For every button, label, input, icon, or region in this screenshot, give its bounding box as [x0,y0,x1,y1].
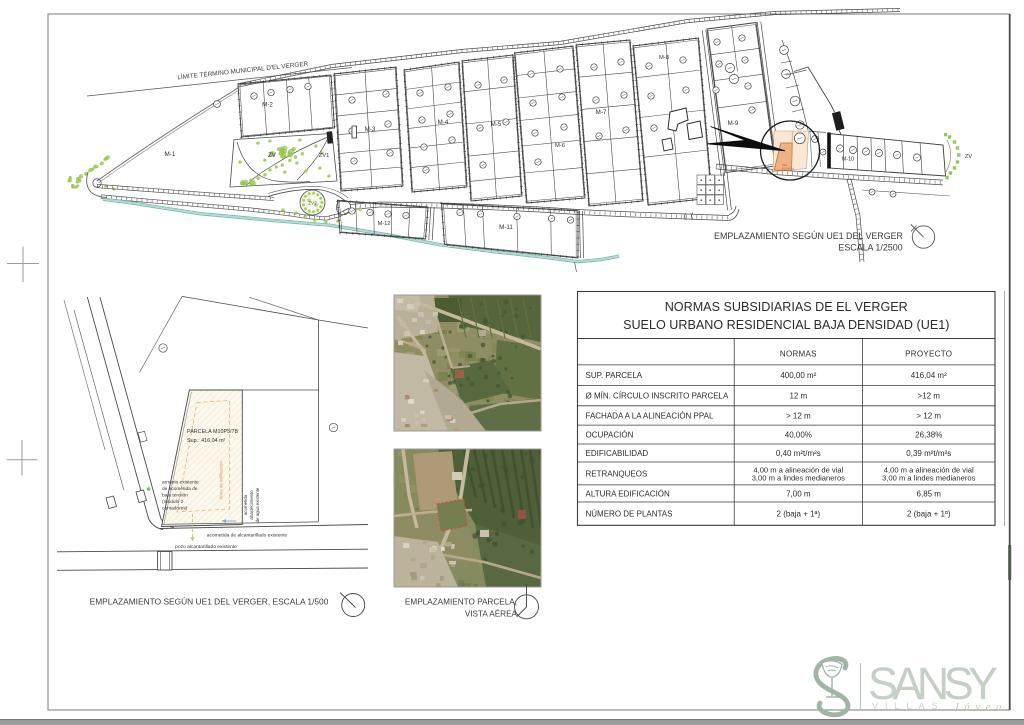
svg-text:M-9: M-9 [728,120,739,127]
svg-text:PARCELA M10P5/7B: PARCELA M10P5/7B [187,429,239,435]
svg-text:NORMAS SUBSIDIARIAS DE EL VERG: NORMAS SUBSIDIARIAS DE EL VERGER [665,300,908,314]
svg-text:SUP. PARCELA: SUP. PARCELA [586,371,643,380]
svg-text:40,00%: 40,00% [785,430,812,439]
svg-text:acometida: acometida [243,494,248,515]
svg-text:> 12 m: > 12 m [786,411,811,420]
svg-text:400,00 m²: 400,00 m² [780,371,816,380]
svg-text:VISTA AÉREA: VISTA AÉREA [465,609,518,619]
svg-text:abastecimiento: abastecimiento [249,490,254,520]
svg-text:416,04 m²: 416,04 m² [782,166,794,170]
svg-text:M-3: M-3 [365,126,376,133]
svg-text:FACHADA A LA ALINEACIÓN PPAL: FACHADA A LA ALINEACIÓN PPAL [586,411,714,420]
svg-text:ALTURA EDIFICACIÓN: ALTURA EDIFICACIÓN [586,489,671,498]
svg-text:0,39 m²t/m²s: 0,39 m²t/m²s [906,449,951,458]
svg-text:7,00 m: 7,00 m [786,489,811,498]
svg-text:>12 m: >12 m [918,392,941,401]
svg-text:EMPLAZAMIENTO SEGÚN UE1 DEL V: EMPLAZAMIENTO SEGÚN UE1 DEL VERGER, ESCA… [90,597,329,607]
svg-text:M-5: M-5 [491,121,502,128]
svg-text:NÚMERO DE PLANTAS: NÚMERO DE PLANTAS [586,509,673,518]
svg-text:M-6: M-6 [555,143,565,149]
svg-text:Sup.: 416,04 m²: Sup.: 416,04 m² [187,438,226,444]
svg-text:M-1: M-1 [164,151,175,158]
svg-text:12 m: 12 m [789,392,807,401]
svg-text:línea de edificación: línea de edificación [219,461,224,499]
svg-text:M-7: M-7 [596,109,607,116]
svg-text:PROYECTO: PROYECTO [905,350,952,359]
svg-text:26,38%: 26,38% [915,430,942,439]
svg-text:RETRANQUEOS: RETRANQUEOS [586,469,648,478]
svg-text:SUELO URBANO RESIDENCIAL BAJA: SUELO URBANO RESIDENCIAL BAJA DENSIDAD (… [623,318,949,332]
svg-text:2 (baja + 1º): 2 (baja + 1º) [907,509,951,518]
svg-text:OCUPACIÓN: OCUPACIÓN [586,430,634,439]
svg-text:pozo alcantarillado existente: pozo alcantarillado existente [175,544,237,550]
svg-text:ZV: ZV [268,152,277,159]
svg-text:Ø MÍN. CÍRCULO INSCRITO PARCE: Ø MÍN. CÍRCULO INSCRITO PARCELA [586,392,730,401]
svg-text:6,85 m: 6,85 m [917,489,942,498]
svg-text:416,04 m²: 416,04 m² [911,371,947,380]
svg-text:armario existente: armario existente [162,480,199,486]
svg-text:VILLAS: VILLAS [872,701,945,711]
svg-text:M-8: M-8 [659,55,669,61]
svg-text:3,00 m a lindes medianeros: 3,00 m a lindes medianeros [752,474,845,483]
svg-text:ZV: ZV [965,154,972,160]
svg-text:ESCALA 1/2500: ESCALA 1/2500 [838,243,902,253]
svg-text:M-10: M-10 [842,157,854,163]
svg-text:acometida de alcantarillado ex: acometida de alcantarillado existente [207,533,288,539]
svg-text:ZV2: ZV2 [308,201,317,206]
svg-text:NORMAS: NORMAS [780,350,817,359]
svg-text:M-4: M-4 [438,119,449,126]
svg-text:contadores): contadores) [162,506,188,512]
svg-text:de acometida de: de acometida de [162,486,198,492]
svg-text:0,40 m²t/m²s: 0,40 m²t/m²s [776,449,821,458]
svg-text:Jávea: Jávea [954,701,1007,713]
svg-text:M-11: M-11 [499,224,513,231]
svg-text:> 12 m: > 12 m [916,411,941,420]
svg-text:EMPLAZAMIENTO PARCELA,: EMPLAZAMIENTO PARCELA, [405,598,517,607]
svg-text:(módulo 2: (módulo 2 [162,499,184,505]
svg-text:baja tensión: baja tensión [162,493,188,499]
svg-text:ZV1: ZV1 [319,153,330,159]
svg-text:3,00 m a lindes medianeros: 3,00 m a lindes medianeros [882,474,975,483]
svg-text:M-12: M-12 [378,221,391,227]
svg-text:EMPLAZAMIENTO SEGÚN UE1 DEL V: EMPLAZAMIENTO SEGÚN UE1 DEL VERGER [714,231,903,241]
svg-text:2 (baja + 1ª): 2 (baja + 1ª) [777,509,821,518]
svg-text:EDIFICABILIDAD: EDIFICABILIDAD [586,449,649,458]
svg-text:M-2: M-2 [262,102,273,109]
svg-text:de agua existente: de agua existente [255,487,260,522]
